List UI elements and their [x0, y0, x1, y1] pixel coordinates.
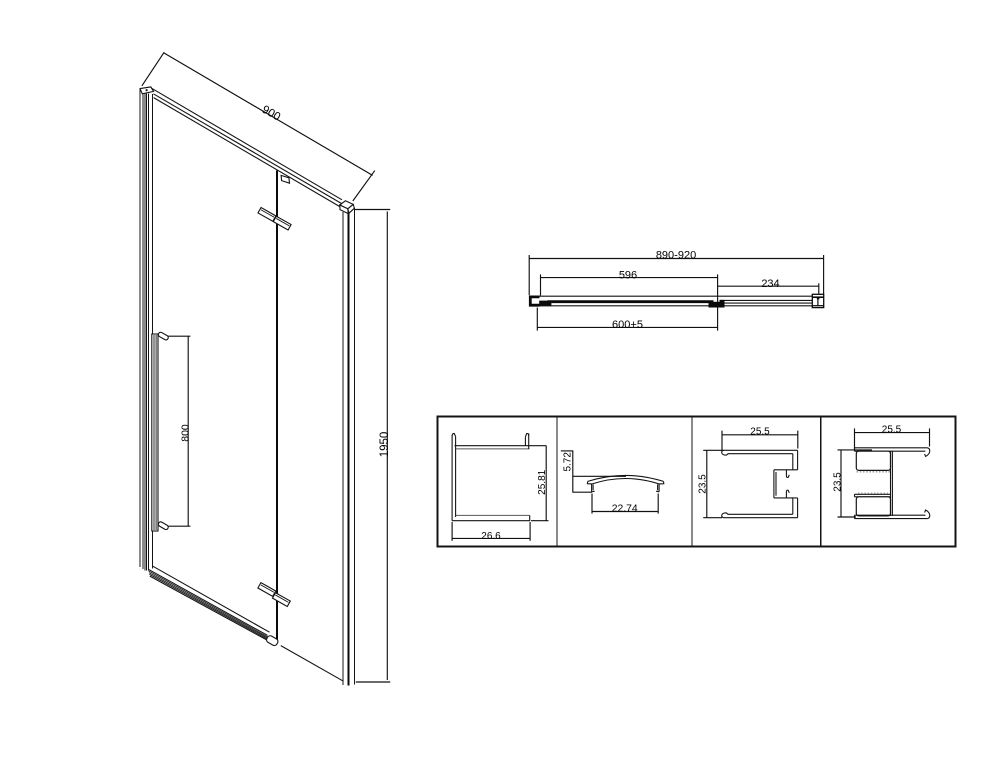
svg-text:5.72: 5.72	[563, 452, 574, 472]
svg-text:1950: 1950	[379, 432, 391, 458]
svg-text:25.5: 25.5	[750, 427, 770, 438]
svg-text:23.5: 23.5	[833, 472, 844, 492]
svg-text:25.81: 25.81	[537, 469, 548, 494]
svg-text:600+5: 600+5	[612, 319, 643, 331]
svg-text:596: 596	[619, 270, 637, 282]
svg-text:890-920: 890-920	[656, 249, 696, 261]
svg-text:25.5: 25.5	[882, 424, 902, 435]
svg-text:800: 800	[179, 424, 191, 442]
svg-text:22.74: 22.74	[612, 503, 638, 514]
svg-text:26.6: 26.6	[481, 531, 501, 542]
svg-text:23.5: 23.5	[697, 474, 708, 494]
svg-text:234: 234	[761, 278, 779, 290]
